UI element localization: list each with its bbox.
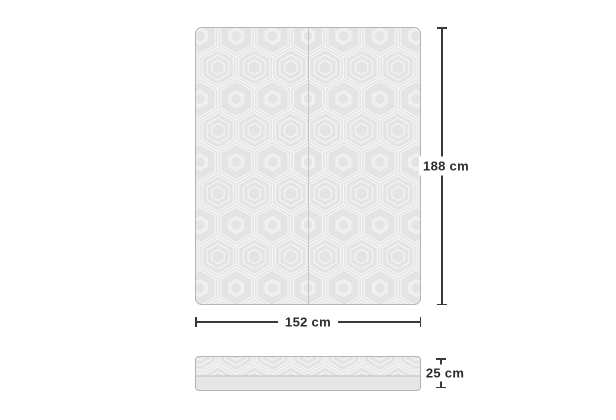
dimension-end-cap (437, 304, 447, 306)
dimension-end-cap (436, 387, 446, 389)
length-dimension-line: 188 cm (437, 27, 447, 305)
dimension-end-cap (436, 358, 446, 360)
width-dimension-line: 152 cm (195, 317, 421, 327)
length-dimension-label: 188 cm (419, 157, 473, 176)
dimension-end-cap (437, 27, 447, 29)
mattress-top-view (195, 27, 421, 305)
dimension-end-cap (420, 317, 422, 327)
height-dimension-line: 25 cm (436, 358, 446, 388)
mattress-side-view (195, 356, 421, 391)
side-view-base-band (196, 376, 420, 390)
width-dimension-label: 152 cm (278, 314, 338, 331)
side-view-graphic (196, 357, 420, 390)
height-dimension-label: 25 cm (422, 365, 468, 382)
dimension-end-cap (195, 317, 197, 327)
mattress-dimensions-diagram: 188 cm 152 cm (0, 0, 616, 420)
side-view-quilted-band (196, 357, 420, 376)
mattress-center-seam (308, 28, 309, 304)
